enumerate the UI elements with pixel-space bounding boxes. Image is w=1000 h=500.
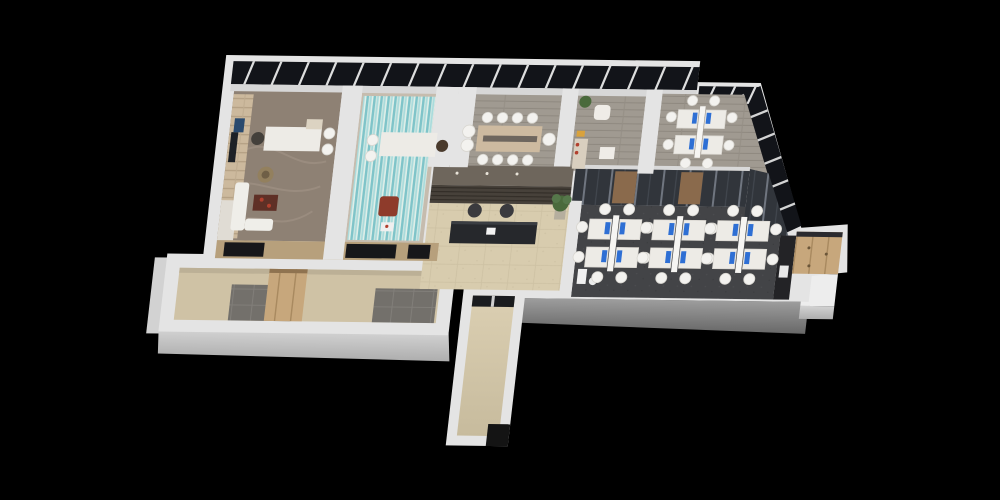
executive-desk bbox=[263, 127, 322, 152]
red-armchair bbox=[378, 196, 399, 216]
table-center-strip bbox=[483, 135, 538, 142]
sofa bbox=[244, 218, 273, 230]
partition-wood-door bbox=[678, 172, 704, 204]
floorplan-scene bbox=[0, 0, 1000, 500]
locker-room-north-strip bbox=[796, 232, 843, 238]
render-canvas bbox=[0, 0, 1000, 500]
desk-return bbox=[306, 119, 323, 129]
reception-feature-wall-top bbox=[432, 165, 574, 187]
meeting-desk bbox=[379, 132, 438, 157]
coffee-table bbox=[252, 195, 278, 211]
left-band-glass bbox=[223, 242, 265, 257]
left-band-glass bbox=[407, 245, 431, 259]
annex-cabinet-edge bbox=[269, 269, 307, 273]
left-band-glass bbox=[345, 244, 397, 259]
lounge-armchair bbox=[593, 105, 611, 120]
annex-cabinet bbox=[264, 269, 308, 321]
counter-paper bbox=[486, 228, 496, 235]
pantry-item-yellow bbox=[576, 131, 585, 137]
glass-partition-band bbox=[572, 169, 750, 207]
locker-room-floor bbox=[792, 232, 843, 275]
side-table bbox=[599, 147, 615, 159]
reception-feature-wall-slats bbox=[430, 185, 572, 205]
annex-tile-right bbox=[372, 288, 438, 323]
water-dispenser bbox=[576, 269, 587, 284]
corridor-end-block bbox=[486, 424, 511, 446]
partition-wood-door bbox=[612, 171, 638, 203]
reception-floor bbox=[420, 203, 570, 291]
copier bbox=[779, 265, 789, 277]
wall-art bbox=[233, 118, 245, 132]
elevator-block-face bbox=[799, 306, 834, 319]
